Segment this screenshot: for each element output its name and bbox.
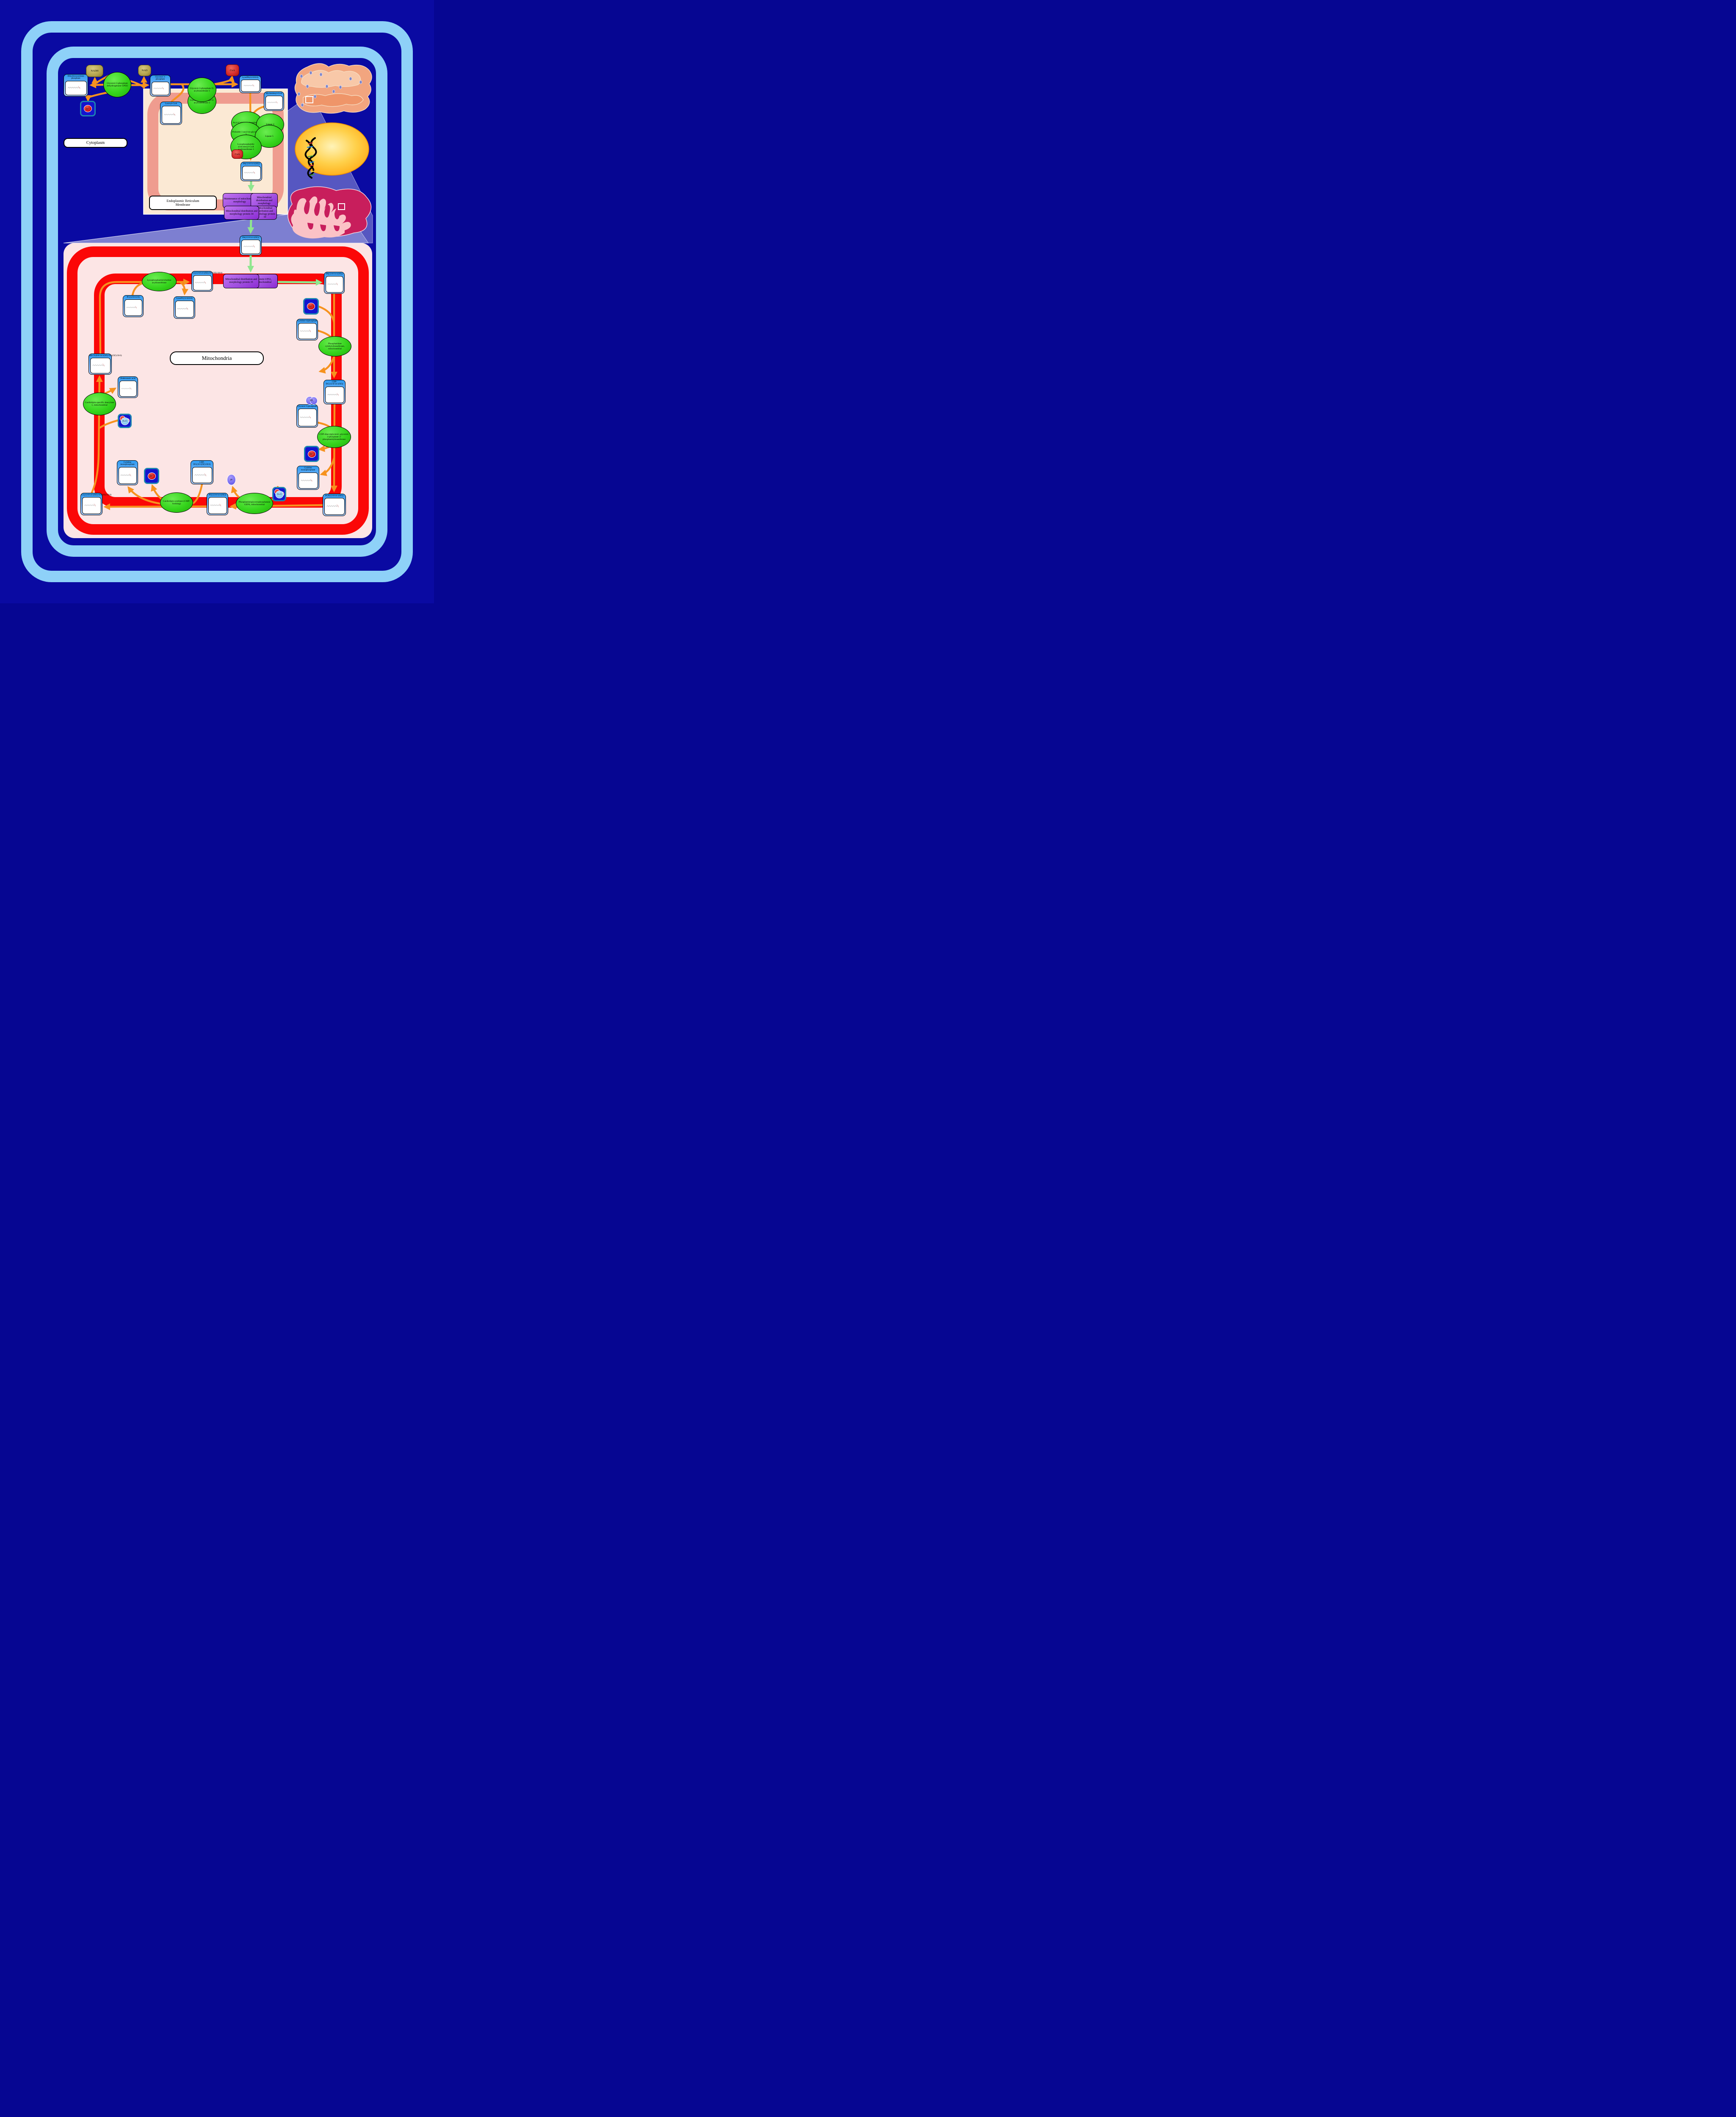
structure-panel — [192, 467, 212, 483]
badge-hplus-bottom[interactable]: H+ — [144, 468, 159, 484]
proton-icon: H+ — [148, 473, 156, 480]
structure-panel — [265, 96, 283, 110]
structure-sketch — [67, 85, 85, 91]
water-icon: H2O — [275, 491, 283, 498]
badge-ppi[interactable]: PPi — [306, 396, 318, 405]
badge-nadh[interactable]: NADH — [86, 65, 103, 77]
structure-panel — [65, 81, 87, 95]
structure-panel — [324, 498, 345, 515]
structure-panel — [325, 387, 344, 403]
badge-coa-1[interactable]: CoA — [226, 64, 239, 76]
enzyme-gep4[interactable]: Phosphatidylglycerophosphatase GEP4, mit… — [236, 493, 273, 514]
compartment-label-cytoplasm: Cytoplasm — [64, 138, 127, 148]
badge-label-wrap: PPi — [310, 399, 313, 402]
badge-label: NADH — [91, 69, 98, 72]
structure-panel — [175, 301, 194, 318]
structure-panel — [152, 82, 169, 95]
metabolite-label: Cytidine triphosphate — [297, 319, 318, 322]
structure-sketch — [194, 472, 210, 478]
metabolite-myristoleoyl-coa[interactable]: Myristoleoyl-CoA — [264, 91, 284, 111]
metabolite-lysopa[interactable]: LysoPA(12:0/0:0) — [239, 75, 261, 93]
structure-sketch — [243, 244, 259, 249]
structure-panel — [298, 409, 317, 426]
metabolite-pa-er[interactable]: PA(12:0/14:1(9Z)) — [240, 162, 262, 181]
metabolite-label: CL(12:0/14:1(9Z)/16:1(9Z)/30:0) — [81, 493, 102, 496]
metabolite-cl-bottom[interactable]: CL(12:0/14:1(9Z)/16:1(9Z)/30:0) — [80, 493, 102, 515]
structure-sketch — [92, 362, 109, 368]
metabolite-mlcl[interactable]: MLCL(0:0/14:1(9Z)/16:1(9Z)/30:0) — [88, 354, 112, 375]
structure-panel — [193, 275, 212, 290]
metabolite-label: Glycerol 3-phosphate — [297, 405, 318, 408]
metabolite-ctp[interactable]: Cytidine triphosphate — [296, 319, 318, 340]
metabolite-label: Glycerol 3-phosphate — [150, 75, 170, 81]
metabolite-label: CDP-DG(12:0/14:1(9Z)) — [324, 380, 345, 386]
metabolite-cdp-dg-right[interactable]: CDP-DG(12:0/14:1(9Z)) — [323, 380, 346, 404]
compartment-label-er-membrane: Endoplasmic Reticulum Membrane — [149, 196, 217, 210]
metabolite-label: Myristoleoyl-CoA — [264, 92, 284, 95]
structure-sketch — [299, 328, 315, 334]
metabolite-pgp[interactable]: PGP(12:0/14:1(9Z)) — [323, 494, 346, 516]
structure-panel — [208, 497, 227, 514]
metabolite-g3p-mito[interactable]: Glycerol 3-phosphate — [296, 404, 318, 428]
structure-panel — [82, 497, 101, 514]
metabolite-label: Lauroyl-CoA — [160, 102, 182, 105]
metabolite-cmp-left[interactable]: Cytidine monophosphate — [117, 460, 138, 485]
structure-panel — [124, 299, 142, 316]
badge-label: CoA — [230, 69, 235, 72]
structure-sketch — [126, 304, 140, 311]
structure-sketch — [177, 306, 192, 312]
badge-h2o-left[interactable]: H2O — [118, 414, 132, 428]
badge-label: CoA — [235, 153, 240, 156]
proton-icon: H+ — [84, 105, 92, 112]
structure-sketch — [327, 281, 341, 287]
badge-label: H — [86, 107, 88, 111]
structure-sketch — [327, 392, 343, 398]
enzyme-phosphatidate-cytidylyltransferase[interactable]: Phosphatidate cytidylyltransferase, mito… — [318, 336, 351, 357]
metabolite-label: CDP-DG(16:1(9Z)/30:0) — [191, 461, 213, 466]
metabolite-cdp-dg-left[interactable]: CDP-DG(16:1(9Z)/30:0) — [191, 460, 213, 484]
metabolite-g3p-cytoplasm[interactable]: Glycerol 3-phosphate — [150, 75, 171, 97]
structure-sketch — [210, 502, 225, 509]
structure-panel — [90, 358, 111, 373]
metabolite-label: PA(12:0/14:1(9Z)) — [240, 236, 261, 239]
structure-sketch — [153, 86, 167, 91]
structure-sketch — [163, 111, 179, 118]
badge-hplus-cytoplasm[interactable]: H+ — [80, 101, 96, 116]
enzyme-gpat1[interactable]: Glycerol-3-phosphate O-acyltransferase 1 — [188, 77, 216, 102]
badge-subscript: i — [313, 400, 313, 402]
metabolite-label: PC(12:0/12:0) — [123, 296, 143, 298]
structure-sketch — [326, 503, 343, 509]
structure-sketch — [243, 83, 258, 88]
protein-mdm35[interactable]: Mitochondrial distribution and morpholog… — [223, 274, 259, 288]
enzyme-lpcat[interactable]: Lysophosphatidylcholine acyltransferase — [142, 272, 177, 291]
metabolite-label: PGP(12:0/14:1(9Z)) — [323, 494, 346, 497]
badge-pi[interactable]: Pi — [227, 474, 236, 485]
structure-panel — [119, 467, 137, 484]
metabolite-label: PA(12:0/14:1(9Z)) — [324, 272, 344, 275]
metabolite-label: LysoPA(12:0/0:0) — [240, 76, 261, 79]
protein-mdm34[interactable]: Mitochondrial distribution and morpholog… — [224, 206, 259, 220]
metabolite-lysopc[interactable]: LysoPC(12:0/0:0) — [174, 296, 195, 319]
metabolite-dhap[interactable]: Dihydroxyacetone phosphate — [64, 74, 88, 97]
badge-hplus-right-upper[interactable]: H+ — [303, 298, 319, 315]
badge-label-tail: O — [280, 493, 282, 496]
badge-label: H — [310, 305, 312, 308]
compartment-label-mitochondria: Mitochondria — [170, 351, 264, 365]
metabolite-label: PA(12:0/14:1(9Z)) — [241, 162, 262, 165]
metabolite-lauroyl-coa[interactable]: Lauroyl-CoA — [160, 102, 182, 125]
structure-sketch — [120, 472, 135, 478]
enzyme-cardiolipin-deacylase[interactable]: Cardiolipin-specific deacylase 1, mitoch… — [83, 392, 116, 415]
node-layer: Dihydroxyacetone phosphateGlycerol 3-pho… — [0, 0, 434, 603]
structure-panel — [242, 166, 261, 180]
structure-panel — [298, 323, 317, 339]
enzyme-cardiolipin-synthase[interactable]: Cardiolipin synthase (CMP-forming) — [160, 492, 193, 513]
metabolite-pg[interactable]: PG(12:0/14:1(9Z)) — [207, 493, 228, 515]
structure-panel — [241, 240, 260, 254]
structure-sketch — [121, 386, 135, 392]
structure-panel — [119, 381, 137, 397]
enzyme-gpd2[interactable]: Glycerol-3-phosphate dehydrogenase GPD2 — [103, 72, 131, 97]
structure-panel — [241, 80, 260, 92]
structure-sketch — [84, 502, 100, 509]
badge-label: NAD — [142, 69, 148, 72]
structure-sketch — [300, 478, 316, 484]
metabolite-label: Cytidine monophosphate — [297, 466, 319, 472]
metabolite-dodecanoic-acid[interactable]: Dodecanoic acid — [118, 376, 138, 398]
structure-sketch — [267, 100, 281, 105]
badge-coa-2[interactable]: CoA — [232, 149, 243, 159]
badge-nad[interactable]: NAD — [138, 65, 151, 76]
structure-sketch — [299, 414, 315, 421]
metabolite-label: Dodecanoic acid — [118, 377, 138, 380]
metabolite-label: CL(12:0/14:1(9Z)/16:1(9Z)/30:0) — [192, 271, 213, 274]
structure-sketch — [243, 170, 259, 175]
metabolite-label: MLCL(0:0/14:1(9Z)/16:1(9Z)/30:0) — [89, 354, 111, 357]
metabolite-label: PG(12:0/14:1(9Z)) — [207, 493, 228, 496]
water-icon: H2O — [121, 417, 129, 425]
structure-panel — [162, 106, 181, 124]
enzyme-cdp-dag-g3p-phosphatidyltransferase[interactable]: CDP-diacylglycerol--glycerol-3-phosphate… — [317, 426, 351, 448]
badge-hplus-right-lower[interactable]: H+ — [304, 446, 319, 462]
metabolite-label: Cytidine monophosphate — [117, 461, 138, 466]
badge-label: PP — [310, 399, 313, 402]
proton-icon: H+ — [307, 303, 315, 310]
metabolite-cmp-right[interactable]: Cytidine monophosphate — [297, 466, 319, 490]
metabolite-label: LysoPC(12:0/0:0) — [174, 297, 195, 300]
pathway-diagram: Dihydroxyacetone phosphateGlycerol 3-pho… — [0, 0, 434, 603]
badge-label-tail: O — [125, 420, 127, 423]
badge-h2o-right[interactable]: H2O — [272, 487, 286, 501]
metabolite-pa-right[interactable]: PA(12:0/14:1(9Z)) — [324, 272, 345, 294]
structure-sketch — [194, 280, 210, 285]
proton-icon: H+ — [308, 450, 316, 458]
metabolite-pc[interactable]: PC(12:0/12:0) — [123, 295, 144, 317]
metabolite-label: Dihydroxyacetone phosphate — [64, 75, 88, 80]
structure-panel — [326, 276, 343, 293]
structure-panel — [299, 473, 318, 489]
metabolite-cl-top[interactable]: CL(12:0/14:1(9Z)/16:1(9Z)/30:0) — [191, 271, 213, 292]
metabolite-pa-ims[interactable]: PA(12:0/14:1(9Z)) — [240, 235, 262, 255]
